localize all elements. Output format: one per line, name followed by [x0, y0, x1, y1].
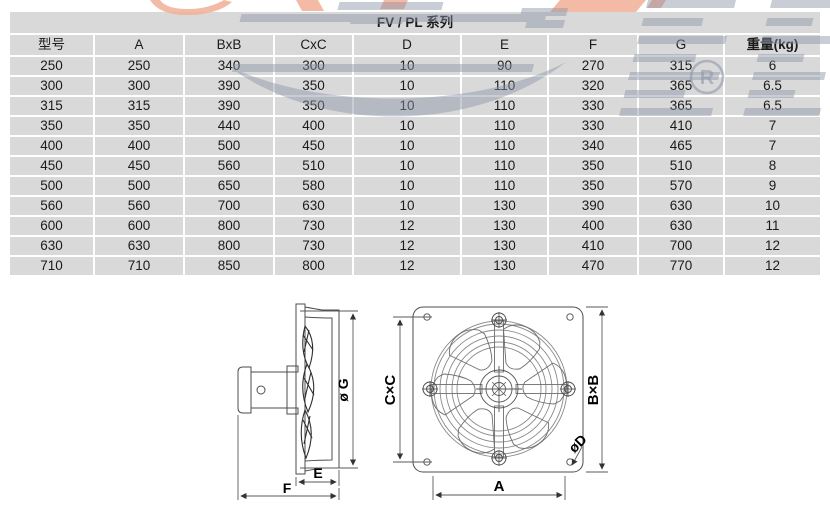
table-cell: 410	[639, 117, 723, 135]
table-cell: 580	[275, 177, 352, 195]
table-cell: 8	[725, 157, 820, 175]
side-view-dimensions	[238, 311, 358, 500]
table-cell: 130	[462, 217, 547, 235]
table-cell: 315	[639, 57, 723, 75]
column-header: BxB	[185, 35, 273, 55]
table-cell: 390	[185, 77, 273, 95]
table-cell: 9	[725, 177, 820, 195]
corner-holes	[424, 314, 573, 465]
table-cell: 400	[275, 117, 352, 135]
dim-label-e: E	[313, 465, 322, 481]
front-view-dimensions	[393, 307, 608, 500]
table-row: 400400500450101103404657	[10, 137, 820, 155]
table-cell: 340	[549, 137, 637, 155]
column-header: G	[639, 35, 723, 55]
mounting-plate	[413, 307, 583, 472]
table-cell: 110	[462, 77, 547, 95]
table-cell: 730	[275, 237, 352, 255]
table-cell: 800	[185, 217, 273, 235]
hub	[476, 366, 522, 412]
table-cell: 350	[275, 77, 352, 95]
table-cell: 390	[185, 97, 273, 115]
table-cell: 510	[275, 157, 352, 175]
column-header: 型号	[10, 35, 93, 55]
table-row: 315315390350101103303656.5	[10, 97, 820, 115]
table-cell: 12	[725, 257, 820, 275]
table-cell: 315	[95, 97, 183, 115]
table-cell: 11	[725, 217, 820, 235]
table-cell: 400	[10, 137, 93, 155]
motor-body	[251, 372, 287, 408]
column-header: A	[95, 35, 183, 55]
dim-label-f: F	[283, 480, 292, 496]
table-cell: 10	[354, 57, 460, 75]
table-cell: 300	[275, 57, 352, 75]
table-cell: 12	[354, 217, 460, 235]
table-cell: 400	[95, 137, 183, 155]
table-cell: 410	[549, 237, 637, 255]
table-cell: 600	[95, 217, 183, 235]
table-cell: 130	[462, 237, 547, 255]
table-cell: 390	[549, 197, 637, 215]
table-cell: 600	[10, 217, 93, 235]
table-cell: 350	[549, 177, 637, 195]
table-cell: 800	[185, 237, 273, 255]
table-cell: 330	[549, 97, 637, 115]
table-cell: 250	[10, 57, 93, 75]
table-cell: 365	[639, 77, 723, 95]
table-cell: 630	[95, 237, 183, 255]
table-cell: 10	[354, 157, 460, 175]
table-cell: 400	[549, 217, 637, 235]
table-cell: 630	[10, 237, 93, 255]
column-header: E	[462, 35, 547, 55]
table-row: 6006008007301213040063011	[10, 217, 820, 235]
table-cell: 570	[639, 177, 723, 195]
table-cell: 560	[95, 197, 183, 215]
dim-label-d: øD	[565, 431, 590, 456]
table-cell: 7	[725, 137, 820, 155]
table-cell: 330	[549, 117, 637, 135]
table-cell: 560	[10, 197, 93, 215]
table-cell: 350	[10, 117, 93, 135]
table-cell: 440	[185, 117, 273, 135]
header-row: 型号ABxBCxCDEFG重量(kg)	[10, 35, 820, 55]
guard-struts	[430, 320, 568, 458]
table-cell: 320	[549, 77, 637, 95]
table-cell: 270	[549, 57, 637, 75]
table-cell: 710	[10, 257, 93, 275]
table-cell: 110	[462, 117, 547, 135]
table-cell: 12	[354, 237, 460, 255]
title-row: FV / PL 系列	[10, 12, 820, 33]
dim-label-g: ø G	[335, 378, 351, 401]
dim-label-bxb: B×B	[585, 375, 602, 406]
table-cell: 110	[462, 97, 547, 115]
table-cell: 465	[639, 137, 723, 155]
table-cell: 560	[185, 157, 273, 175]
table-cell: 300	[10, 77, 93, 95]
table-cell: 12	[725, 237, 820, 255]
dim-label-cxc: C×C	[382, 375, 399, 406]
table-cell: 6	[725, 57, 820, 75]
table-cell: 630	[275, 197, 352, 215]
table-cell: 10	[354, 97, 460, 115]
table-cell: 650	[185, 177, 273, 195]
table-cell: 630	[639, 217, 723, 235]
table-cell: 500	[10, 177, 93, 195]
table-cell: 300	[95, 77, 183, 95]
table-row: 450450560510101103505108	[10, 157, 820, 175]
column-header: CxC	[275, 35, 352, 55]
table-cell: 850	[185, 257, 273, 275]
table-row: 6306308007301213041070012	[10, 237, 820, 255]
table-cell: 800	[275, 257, 352, 275]
table-cell: 6.5	[725, 97, 820, 115]
table-row: 350350440400101103304107	[10, 117, 820, 135]
series-title: FV / PL 系列	[10, 12, 820, 33]
table-cell: 350	[95, 117, 183, 135]
table-cell: 12	[354, 257, 460, 275]
side-view: ø G E F	[238, 304, 358, 500]
table-cell: 10	[354, 77, 460, 95]
table-cell: 130	[462, 257, 547, 275]
table-cell: 770	[639, 257, 723, 275]
table-cell: 315	[10, 97, 93, 115]
bracket-foot-top	[287, 366, 298, 372]
table-cell: 110	[462, 177, 547, 195]
table-cell: 365	[639, 97, 723, 115]
table-cell: 10	[725, 197, 820, 215]
table-cell: 470	[549, 257, 637, 275]
bracket-foot-bottom	[287, 408, 298, 414]
dim-leader-d	[572, 447, 582, 465]
table-cell: 10	[354, 137, 460, 155]
table-cell: 450	[10, 157, 93, 175]
motor-end-cap	[238, 367, 251, 413]
table-cell: 130	[462, 197, 547, 215]
casing-inner-profile	[305, 317, 332, 461]
table-cell: 340	[185, 57, 273, 75]
column-header: D	[354, 35, 460, 55]
table-cell: 90	[462, 57, 547, 75]
table-cell: 6.5	[725, 77, 820, 95]
impeller-front-blades	[432, 318, 567, 461]
table-cell: 630	[639, 197, 723, 215]
table-body: 2502503403001090270315630030039035010110…	[10, 57, 820, 275]
table-cell: 350	[275, 97, 352, 115]
datasheet-page: R FV / PL 系列 型号ABxBCxCDEFG重量(kg) 2502503…	[0, 0, 830, 519]
table-cell: 110	[462, 137, 547, 155]
table-cell: 10	[354, 177, 460, 195]
table-cell: 730	[275, 217, 352, 235]
table-cell: 10	[354, 117, 460, 135]
table-row: 500500650580101103505709	[10, 177, 820, 195]
table-row: 25025034030010902703156	[10, 57, 820, 75]
table-row: 7107108508001213047077012	[10, 257, 820, 275]
table-cell: 700	[639, 237, 723, 255]
motor-bracket	[287, 366, 296, 414]
motor-detail-hole	[257, 386, 265, 394]
table-cell: 700	[185, 197, 273, 215]
table-cell: 110	[462, 157, 547, 175]
table-cell: 7	[725, 117, 820, 135]
column-header: F	[549, 35, 637, 55]
table-cell: 450	[275, 137, 352, 155]
table-cell: 500	[95, 177, 183, 195]
fan-guard-rings	[431, 321, 567, 457]
table-cell: 350	[549, 157, 637, 175]
casing-outer-profile	[305, 307, 339, 471]
table-cell: 500	[185, 137, 273, 155]
table-cell: 250	[95, 57, 183, 75]
table-row: 5605607006301013039063010	[10, 197, 820, 215]
table-cell: 450	[95, 157, 183, 175]
table-cell: 510	[639, 157, 723, 175]
table-cell: 710	[95, 257, 183, 275]
dim-label-a: A	[494, 478, 505, 495]
mounting-flange-plate	[296, 304, 305, 474]
spec-table: FV / PL 系列 型号ABxBCxCDEFG重量(kg) 250250340…	[8, 10, 822, 277]
table-row: 300300390350101103203656.5	[10, 77, 820, 95]
guard-bosses	[422, 312, 576, 466]
column-header: 重量(kg)	[725, 35, 820, 55]
front-view: C×C B×B A øD	[382, 307, 608, 500]
table-cell: 10	[354, 197, 460, 215]
impeller-side-blades	[301, 326, 314, 458]
